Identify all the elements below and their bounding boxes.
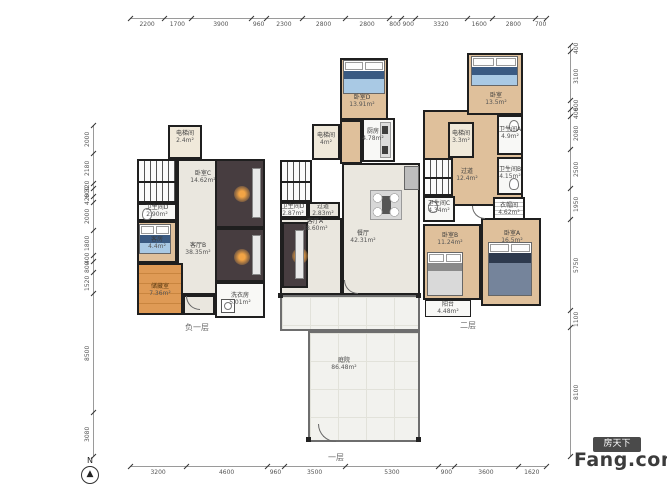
fence-post [416,293,421,298]
bed-bedroom-d-f1 [343,60,385,94]
bed-pillows [490,244,530,252]
floor-label-second: 二层 [448,320,488,331]
dimension-label: 1100 [573,306,581,332]
room-label: 卧室C 14.62m² [186,170,220,184]
sofa-icon [295,230,304,279]
room-area: 4.48m² [432,308,464,315]
bed-bedroom-a-f2 [488,242,532,296]
staircase-b1 [137,159,177,203]
dimension-line-bottom [130,466,546,467]
sofa-icon [252,168,261,219]
room-label: 过道 12.4m² [450,168,484,182]
room-label: 卫生间C 4.34m² [423,200,455,214]
dimension-label: 3100 [573,63,581,89]
bed-bedroom-top-f2 [471,56,518,86]
dimension-tick [544,463,550,469]
dimension-label: 2300 [269,21,299,28]
compass: N ▲ [78,456,102,484]
room-area: 2.83m² [308,210,338,217]
room-label: 餐厅 42.31m² [346,230,380,244]
room-label: 卧室A 16.5m² [492,230,532,244]
dimension-label: 1950 [573,191,581,217]
room-name: 卧室D [344,94,380,101]
room-name: 卫生间A [493,126,527,133]
dimension-label: 5750 [573,252,581,278]
dimension-label: 2080 [573,120,581,146]
room-name: 卫生间D [278,203,308,210]
room-area: 4.62m² [494,209,524,216]
room-area: 3.3m² [443,137,479,144]
room-bedroom-c-b1 [215,159,265,228]
dimension-label: 3900 [206,21,236,28]
door-arc [472,206,485,219]
dimension-label: 960 [260,469,290,476]
room-name: 餐厅 [346,230,380,237]
dimension-label: 2000 [84,126,92,152]
room-name: 卧室 [478,92,514,99]
staircase-f1 [280,160,312,202]
fridge-icon [404,166,419,190]
fence-post [278,293,283,298]
dimension-label: 2200 [132,21,162,28]
room-area: 4.4m² [141,243,173,250]
floor-plan-canvas: 电梯间 2.4m² 卫生间D 2.90m² 客房 4.4m² 卧室C 14.62… [0,0,667,500]
room-area: 18.60m² [298,225,332,232]
fence-post [416,437,421,442]
room-name: 卧室C [186,170,220,177]
bed-pillows [473,58,516,66]
bed-blanket [428,263,462,295]
bed-pillows [345,62,383,70]
room-label: 电梯间 3.3m² [443,130,479,144]
bed-blanket [472,67,517,85]
dining-table-icon [370,190,402,220]
bed-pillows [429,254,461,262]
dimension-label: 1700 [162,21,192,28]
room-label: 客厅B 38.35m² [181,242,215,256]
dimension-label: 400 [573,35,581,61]
dimension-label: 900 [431,469,461,476]
room-area: 4.9m² [493,133,527,140]
room-name: 电梯间 [312,132,340,139]
room-name: 洗衣房 [222,292,258,299]
room-label: 过道 2.83m² [308,203,338,217]
fence-post [306,437,311,442]
bed-blanket [489,253,531,295]
room-label: 客房 4.4m² [141,236,173,250]
room-label: 卫生间A 4.9m² [493,126,527,140]
dimension-label: 2800 [309,21,339,28]
room-area: 11.24m² [430,239,470,246]
room-name: 过道 [308,203,338,210]
room-area: 4.15m² [493,173,527,180]
dimension-label: 3500 [300,469,330,476]
room-label: 衣帽间 4.62m² [494,202,524,216]
dimension-label: 900 [393,21,423,28]
dimension-label: 5300 [377,469,407,476]
room-name: 过道 [450,168,484,175]
dimension-label: 8500 [84,340,92,366]
room-name: 卧室B [430,232,470,239]
room-name: 庭院 [326,357,362,364]
room-name: 卫生间C [423,200,455,207]
room-label: 电梯间 4m² [312,132,340,146]
sofa-icon [252,235,261,275]
room-label: 卧室 13.5m² [478,92,514,106]
room-area: 2.87m² [278,210,308,217]
room-area: 86.48m² [326,364,362,371]
room-area: 4m² [312,139,340,146]
room-label: 储藏室 7.36m² [141,283,179,297]
room-area: 16.5m² [492,237,532,244]
room-name: 电梯间 [168,130,202,137]
dimension-label: 3600 [471,469,501,476]
room-area: 13.91m² [344,101,380,108]
room-area: 12.4m² [450,175,484,182]
room-area: 5.01m² [222,299,258,306]
floor-label-first: 一层 [316,452,356,463]
room-name: 厨房 [360,128,386,135]
room-area: 13.5m² [478,99,514,106]
dimension-label: 1600 [464,21,494,28]
room-label: 客厅A 18.60m² [298,218,332,232]
room-label: 电梯间 2.4m² [168,130,202,144]
room-area: 2.4m² [168,137,202,144]
room-name: 卫生间B [493,166,527,173]
watermark-logo: Fang.com [574,449,667,471]
dimension-label: 2500 [573,156,581,182]
room-area: 4.34m² [423,207,455,214]
dimension-label: 2800 [352,21,382,28]
garden-upper [280,295,420,331]
room-label: 洗衣房 5.01m² [222,292,258,306]
bed-pillows [141,226,169,234]
dimension-tick [544,15,550,21]
room-name: 卧室A [492,230,532,237]
room-name: 阳台 [432,301,464,308]
dimension-label: 1620 [517,469,547,476]
room-area: 38.35m² [181,249,215,256]
room-name: 客厅B [181,242,215,249]
floor-label-basement: 负一层 [172,322,222,333]
room-area: 14.62m² [186,177,220,184]
room-label: 卫生间D 2.87m² [278,203,308,217]
dimension-label: 2000 [84,203,92,229]
dimension-label: 700 [526,21,556,28]
room-area: 4.78m² [360,135,386,142]
dimension-label: 3320 [426,21,456,28]
room-label: 卧室D 13.91m² [344,94,380,108]
hall-strip-f1 [340,120,362,164]
room-label: 卫生间D 2.90m² [139,204,175,218]
room-area: 2.90m² [139,211,175,218]
north-arrow-icon: ▲ [81,466,99,484]
room-label: 卫生间B 4.15m² [493,166,527,180]
staircase-f2 [423,158,453,196]
bed-bedroom-b-f2 [427,252,463,296]
room-area: 7.36m² [141,290,179,297]
bed-blanket [344,71,384,93]
room-name: 电梯间 [443,130,479,137]
room-media-b1 [215,228,265,282]
dimension-label: 3200 [143,469,173,476]
dimension-label: 1520 [84,270,92,296]
room-name: 客房 [141,236,173,243]
room-name: 卫生间D [139,204,175,211]
dimension-label: 8100 [573,379,581,405]
room-name: 客厅A [298,218,332,225]
dimension-tick [568,453,574,459]
dimension-label: 4600 [212,469,242,476]
room-name: 储藏室 [141,283,179,290]
room-label: 庭院 86.48m² [326,357,362,371]
room-label: 阳台 4.48m² [432,301,464,315]
dimension-label: 2800 [498,21,528,28]
room-name: 衣帽间 [494,202,524,209]
room-label: 卧室B 11.24m² [430,232,470,246]
room-label: 厨房 4.78m² [360,128,386,142]
room-area: 42.31m² [346,237,380,244]
dimension-label: 3080 [84,421,92,447]
